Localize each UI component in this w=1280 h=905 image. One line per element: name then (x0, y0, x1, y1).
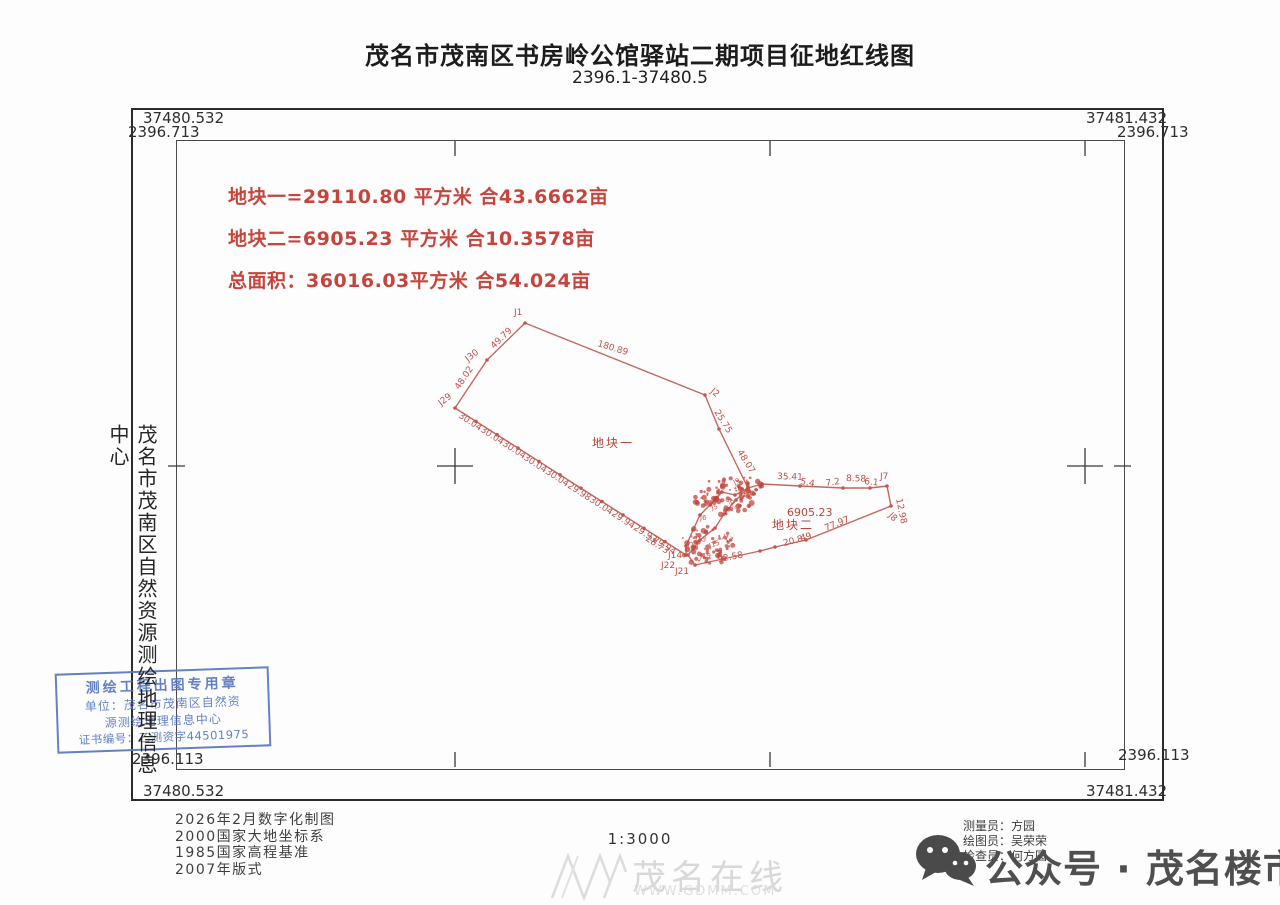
agency-vertical-name: 茂名市茂南区自然资源测绘地理信息中心 (104, 424, 160, 794)
svg-text:J21: J21 (674, 567, 689, 577)
svg-text:6905.23: 6905.23 (787, 506, 833, 519)
svg-text:J7: J7 (879, 472, 888, 482)
note-format: 2007年版式 (175, 862, 336, 879)
svg-text:地块一: 地块一 (592, 436, 634, 450)
svg-text:25.75: 25.75 (711, 408, 733, 435)
svg-text:地块二: 地块二 (772, 518, 814, 532)
svg-text:J5: J5 (709, 503, 718, 513)
svg-text:J19: J19 (699, 552, 711, 560)
certification-stamp: 测绘工程出图专用章 单位：茂名市茂南区自然资 源测绘地理信息中心 证书编号：乙测… (55, 666, 272, 753)
note-datum: 2000国家大地坐标系 (175, 829, 336, 846)
svg-text:180.89: 180.89 (596, 339, 629, 358)
wechat-account-label: 公众号 · 茂名楼市 (985, 838, 1280, 893)
svg-text:6.1: 6.1 (864, 477, 879, 488)
area-summary: 地块一=29110.80 平方米 合43.6662亩 地块二=6905.23 平… (228, 182, 608, 308)
svg-text:J2: J2 (707, 386, 721, 400)
svg-text:49.79: 49.79 (489, 326, 515, 351)
svg-text:J14: J14 (667, 551, 682, 561)
scanned-survey-sheet: 茂名市茂南区书房岭公馆驿站二期项目征地红线图 2396.1-37480.5 37… (0, 0, 1280, 905)
coord-top-right-easting: 2396.713 (1117, 123, 1189, 141)
svg-text:J22: J22 (660, 561, 675, 571)
svg-text:J29: J29 (436, 392, 454, 409)
note-height-datum: 1985国家高程基准 (175, 845, 336, 862)
wechat-icon (912, 832, 980, 888)
note-digitized: 2026年2月数字化制图 (175, 812, 336, 829)
map-notes: 2026年2月数字化制图 2000国家大地坐标系 1985国家高程基准 2007… (175, 812, 336, 878)
svg-text:J17: J17 (720, 532, 734, 544)
svg-text:48.02: 48.02 (453, 365, 476, 392)
svg-text:J30: J30 (463, 348, 481, 365)
coord-bottom-right-northing: 37481.432 (1086, 782, 1167, 800)
svg-text:20.8: 20.8 (782, 534, 804, 549)
area-line-parcel2: 地块二=6905.23 平方米 合10.3578亩 (228, 224, 608, 251)
svg-text:35.41: 35.41 (777, 472, 803, 483)
map-scale: 1:3000 (560, 830, 720, 848)
coord-bottom-right-easting: 2396.113 (1118, 746, 1190, 764)
area-line-parcel1: 地块一=29110.80 平方米 合43.6662亩 (228, 182, 608, 209)
area-line-total: 总面积：36016.03平方米 合54.024亩 (228, 266, 608, 293)
svg-text:7.2: 7.2 (825, 477, 841, 489)
svg-text:J1: J1 (513, 308, 522, 318)
svg-text:12.98: 12.98 (893, 498, 908, 526)
svg-text:J6: J6 (699, 514, 707, 522)
coord-top-left-easting: 2396.713 (128, 123, 200, 141)
svg-text:5.4: 5.4 (799, 477, 815, 489)
svg-text:48.07: 48.07 (734, 448, 756, 475)
